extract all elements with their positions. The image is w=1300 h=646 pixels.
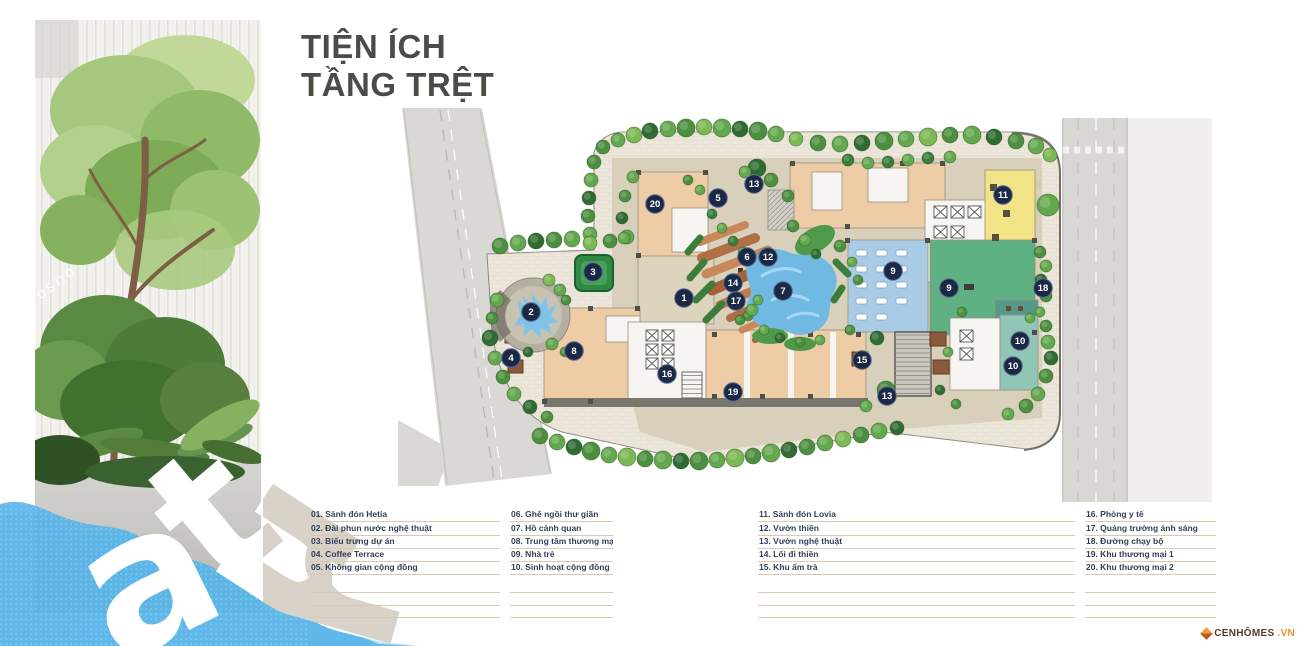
legend-empty-line	[310, 593, 500, 606]
legend-item-17: 17. Quảng trường ánh sáng	[1085, 522, 1216, 535]
map-marker-14: 14	[724, 274, 743, 293]
map-marker-13: 13	[745, 175, 764, 194]
legend-item-01: 01. Sảnh đón Hetia	[310, 509, 500, 522]
map-marker-7: 7	[774, 282, 793, 301]
svg-text:9: 9	[890, 266, 895, 277]
svg-text:10: 10	[1008, 361, 1019, 372]
map-marker-2: 2	[522, 303, 541, 322]
svg-text:19: 19	[728, 387, 739, 398]
tree-canopy	[40, 35, 260, 290]
legend-empty-line	[1085, 606, 1216, 619]
legend-empty-line	[1085, 581, 1216, 594]
svg-text:15: 15	[857, 355, 868, 366]
svg-text:18: 18	[1038, 283, 1049, 294]
svg-text:6: 6	[744, 252, 749, 263]
map-marker-19: 19	[724, 383, 743, 402]
legend-item-07: 07. Hồ cảnh quan	[510, 522, 613, 535]
legend-item-18: 18. Đường chạy bộ	[1085, 536, 1216, 549]
map-marker-3: 3	[584, 263, 603, 282]
svg-text:8: 8	[571, 346, 576, 357]
legend-column-1: 01. Sảnh đón Hetia02. Đài phun nước nghệ…	[310, 509, 500, 618]
legend-item-15: 15. Khu ẩm trà	[758, 562, 1075, 575]
brand-diamond-icon	[1200, 627, 1213, 640]
legend-empty-line	[310, 581, 500, 594]
map-marker-15: 15	[853, 351, 872, 370]
map-marker-13: 13	[878, 387, 897, 406]
brand-name: CENHÔMES	[1214, 628, 1274, 639]
legend-item-08: 08. Trung tâm thương mại	[510, 536, 613, 549]
svg-text:16: 16	[662, 369, 673, 380]
legend-empty-line	[1085, 593, 1216, 606]
legend-empty-line	[758, 581, 1075, 594]
svg-text:11: 11	[998, 190, 1009, 201]
svg-text:12: 12	[763, 252, 774, 263]
svg-text:10: 10	[1015, 336, 1026, 347]
legend-column-3: 11. Sảnh đón Lovia12. Vườn thiền13. Vườn…	[758, 509, 1075, 618]
map-marker-9: 9	[940, 279, 959, 298]
map-marker-11: 11	[994, 186, 1013, 205]
map-marker-18: 18	[1034, 279, 1053, 298]
brand-tld: .VN	[1277, 628, 1295, 639]
map-marker-5: 5	[709, 189, 728, 208]
legend-item-10: 10. Sinh hoạt cộng đồng	[510, 562, 613, 575]
map-marker-4: 4	[502, 349, 521, 368]
legend-empty-line	[510, 593, 613, 606]
legend-item-05: 05. Không gian cộng đồng	[310, 562, 500, 575]
page: atur atur osno TIỆN ÍCH TẦNG TRỆT	[0, 0, 1300, 646]
legend-empty-line	[758, 606, 1075, 619]
legend-item-16: 16. Phòng y tế	[1085, 509, 1216, 522]
svg-text:13: 13	[749, 179, 760, 190]
svg-text:20: 20	[650, 199, 661, 210]
legend-empty-line	[310, 606, 500, 619]
legend-item-09: 09. Nhà trẻ	[510, 549, 613, 562]
svg-text:5: 5	[715, 193, 721, 204]
site-plan-svg: 123456789910101112131314151617181920	[395, 105, 1215, 505]
svg-text:14: 14	[728, 278, 739, 289]
legend-item-04: 04. Coffee Terrace	[310, 549, 500, 562]
page-title: TIỆN ÍCH TẦNG TRỆT	[301, 28, 494, 104]
legend-item-12: 12. Vườn thiền	[758, 522, 1075, 535]
map-marker-10: 10	[1011, 332, 1030, 351]
legend-item-02: 02. Đài phun nước nghệ thuật	[310, 522, 500, 535]
svg-text:1: 1	[681, 293, 687, 304]
map-marker-17: 17	[727, 292, 746, 311]
legend: 01. Sảnh đón Hetia02. Đài phun nước nghệ…	[0, 509, 1300, 629]
legend-column-4: 16. Phòng y tế17. Quảng trường ánh sáng1…	[1085, 509, 1216, 618]
svg-text:2: 2	[528, 307, 533, 318]
map-marker-16: 16	[658, 365, 677, 384]
title-line-2: TẦNG TRỆT	[301, 66, 494, 103]
legend-empty-line	[510, 581, 613, 594]
svg-text:4: 4	[508, 353, 514, 364]
legend-item-14: 14. Lối đi thiền	[758, 549, 1075, 562]
legend-item-20: 20. Khu thương mại 2	[1085, 562, 1216, 575]
legend-column-2: 06. Ghế ngồi thư giãn07. Hồ cảnh quan08.…	[510, 509, 613, 618]
svg-text:13: 13	[882, 391, 893, 402]
legend-item-11: 11. Sảnh đón Lovia	[758, 509, 1075, 522]
map-marker-12: 12	[759, 248, 778, 267]
legend-item-13: 13. Vườn nghệ thuật	[758, 536, 1075, 549]
title-line-1: TIỆN ÍCH	[301, 28, 446, 65]
svg-text:9: 9	[946, 283, 951, 294]
brand-logo: CENHÔMES.VN	[1202, 628, 1295, 639]
legend-item-19: 19. Khu thương mại 1	[1085, 549, 1216, 562]
map-marker-6: 6	[738, 248, 757, 267]
map-marker-20: 20	[646, 195, 665, 214]
map-marker-10: 10	[1004, 357, 1023, 376]
legend-item-06: 06. Ghế ngồi thư giãn	[510, 509, 613, 522]
svg-text:7: 7	[780, 286, 785, 297]
map-marker-1: 1	[675, 289, 694, 308]
legend-item-03: 03. Biểu trưng dự án	[310, 536, 500, 549]
legend-empty-line	[758, 593, 1075, 606]
svg-text:17: 17	[731, 296, 742, 307]
svg-text:3: 3	[590, 267, 595, 278]
legend-empty-line	[510, 606, 613, 619]
road-east	[1062, 118, 1212, 502]
map-marker-9: 9	[884, 262, 903, 281]
map-marker-8: 8	[565, 342, 584, 361]
site-plan-map: 123456789910101112131314151617181920	[395, 105, 1215, 505]
